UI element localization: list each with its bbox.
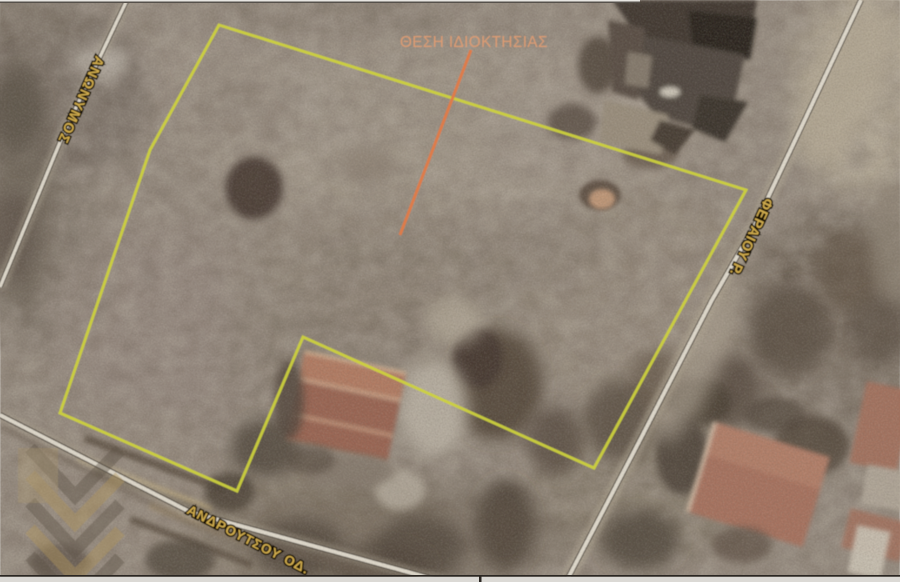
svg-text:ΘΕΣΗ ΙΔΙΟΚΤΗΣΙΑΣ: ΘΕΣΗ ΙΔΙΟΚΤΗΣΙΑΣ: [400, 34, 548, 51]
